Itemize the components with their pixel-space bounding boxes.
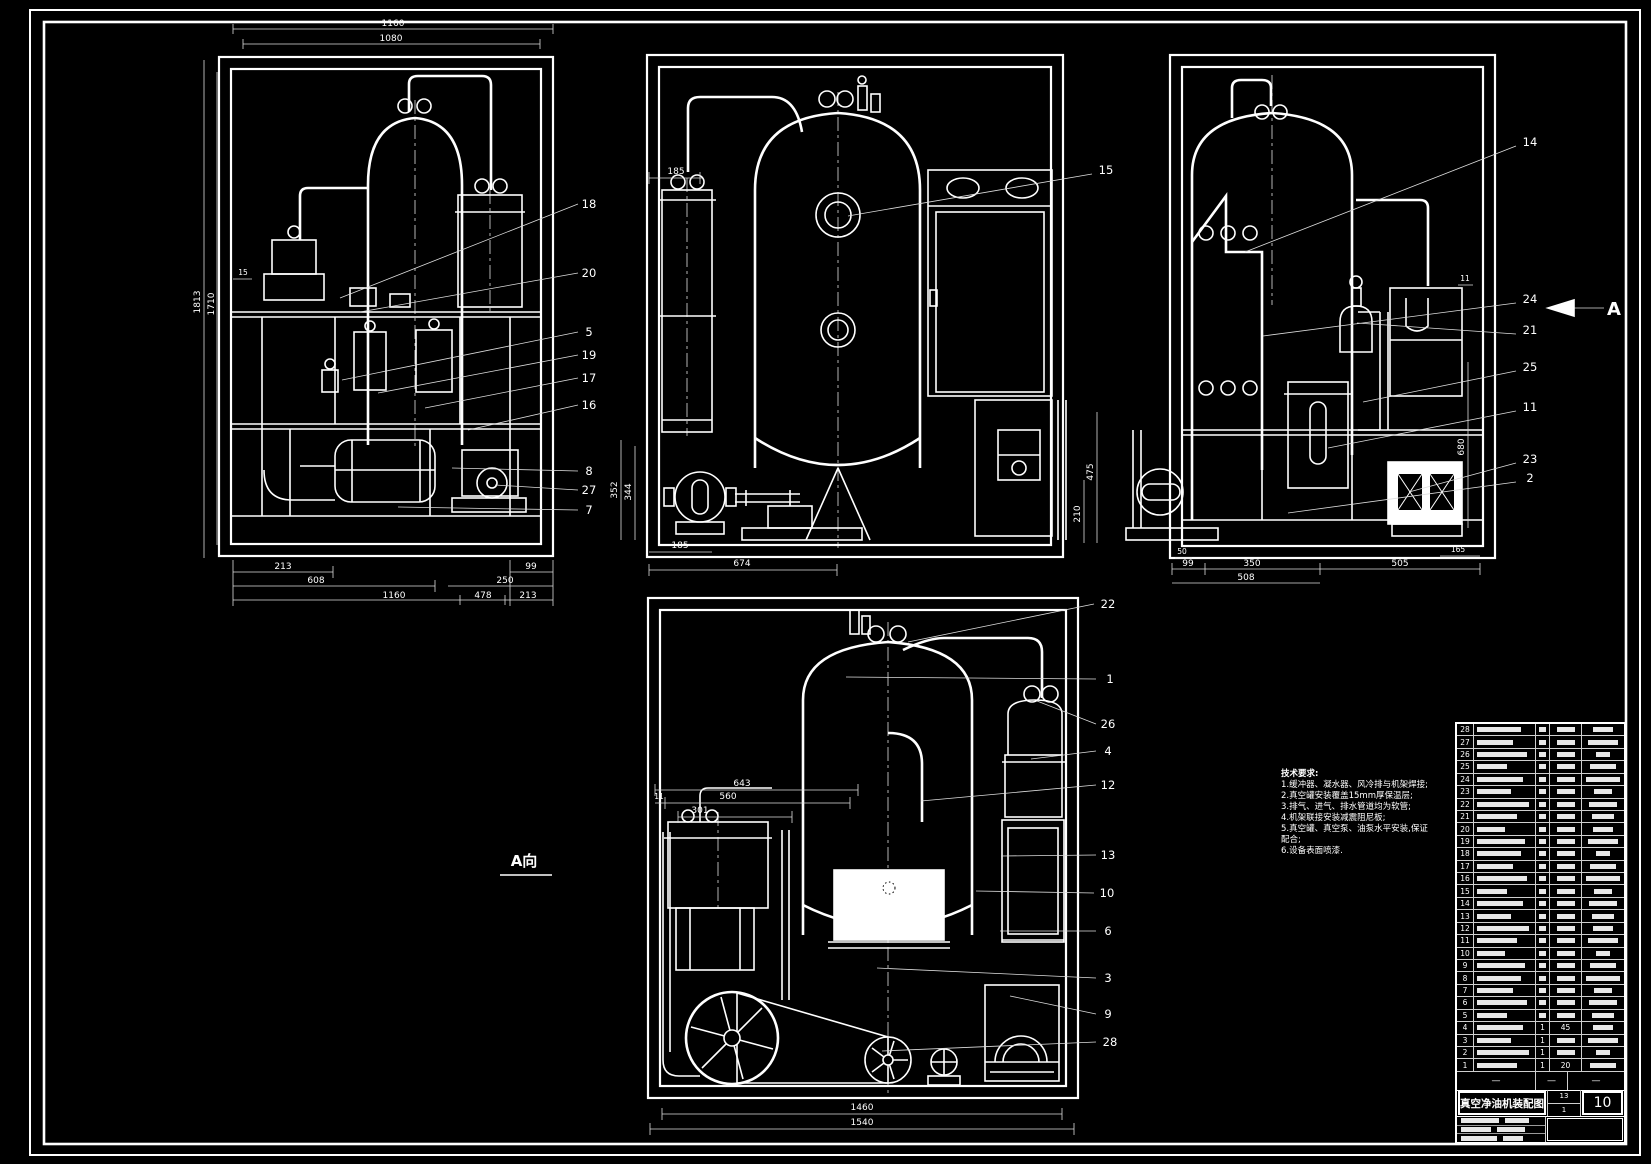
tech-requirements-heading: 技术要求: [1281, 769, 1439, 780]
dim-label: 185 [667, 167, 684, 177]
callout-label: 14 [1523, 135, 1538, 149]
separator-cell: — [1568, 1072, 1624, 1090]
parts-table-row: 14 [1457, 898, 1624, 910]
view-a-direction [648, 598, 1078, 1098]
callout-label: 28 [1103, 1035, 1118, 1049]
parts-table-row: 13 [1457, 910, 1624, 922]
callout-label: 13 [1101, 848, 1116, 862]
view-side-right [1126, 55, 1495, 558]
callout-label: 18 [582, 197, 597, 211]
dim-label: 213 [274, 562, 291, 572]
callout-label: 21 [1523, 323, 1538, 337]
title-block-empty-box [1547, 1118, 1623, 1141]
view-front-main [647, 55, 1066, 557]
parts-table-row: 9 [1457, 960, 1624, 972]
dim-label: 508 [1237, 573, 1254, 583]
drawing-sheet: 1160 1080 1813 1710 15 213 99 608 250 11… [0, 0, 1651, 1164]
callout-label: 11 [1523, 400, 1538, 414]
dim-label: 1710 [207, 292, 217, 315]
parts-table-row: 4145 [1457, 1022, 1624, 1034]
parts-table-row: 11 [1457, 935, 1624, 947]
signature-rows [1457, 1117, 1546, 1142]
parts-table-rows: 2827262524232221201918171615141312111098… [1457, 724, 1624, 1072]
parts-table-row: 26 [1457, 749, 1624, 761]
parts-table-row: 17 [1457, 861, 1624, 873]
parts-table-row: 6 [1457, 997, 1624, 1009]
callout-label: 3 [1104, 971, 1111, 985]
drawing-title: 真空净油机装配图 [1458, 1091, 1546, 1115]
separator-cell: — [1457, 1072, 1536, 1090]
dim-label: 213 [519, 591, 536, 601]
dim-label: 11 [654, 792, 664, 801]
a-view-label: A向 [500, 852, 552, 875]
dim-label: 560 [719, 792, 736, 802]
tech-requirement-line: 1.缓冲器、凝水器、风冷排与机架焊接; [1281, 780, 1439, 791]
parts-table-row: 20 [1457, 823, 1624, 835]
dim-label: 1160 [382, 19, 405, 29]
dim-label: 505 [1391, 559, 1408, 569]
dim-label: 99 [525, 562, 537, 572]
dim-label: 352 [610, 481, 620, 498]
callout-label: 5 [585, 325, 592, 339]
callout-label: 27 [582, 483, 597, 497]
callout-label: 4 [1104, 744, 1111, 758]
dim-label: 1813 [193, 291, 203, 314]
dim-label: 99 [1182, 559, 1194, 569]
tech-requirement-line: 配合; [1281, 835, 1439, 846]
parts-table-row: 25 [1457, 761, 1624, 773]
section-arrow-label: A [1607, 299, 1621, 320]
parts-table-row: 1120 [1457, 1059, 1624, 1071]
tech-requirement-line: 2.真空罐安装覆盖15mm厚保温层; [1281, 791, 1439, 802]
parts-table-row: 27 [1457, 736, 1624, 748]
parts-table-row: 22 [1457, 799, 1624, 811]
parts-table-row: 10 [1457, 948, 1624, 960]
parts-table-row: 28 [1457, 724, 1624, 736]
callout-label: 9 [1104, 1007, 1111, 1021]
title-block: 真空净油机装配图 13 1 10 [1457, 1090, 1624, 1116]
callout-label: 19 [582, 348, 597, 362]
callout-label: 2 [1526, 471, 1533, 485]
cad-drawing-canvas[interactable]: 1160 1080 1813 1710 15 213 99 608 250 11… [0, 0, 1651, 1164]
dim-label: 350 [1243, 559, 1260, 569]
parts-table-row: 18 [1457, 848, 1624, 860]
callout-label: 12 [1101, 778, 1116, 792]
callout-label: 17 [582, 371, 597, 385]
tech-requirement-line: 6.设备表面喷漆. [1281, 846, 1439, 857]
callout-label: 10 [1100, 886, 1115, 900]
callout-label: 25 [1523, 360, 1538, 374]
parts-table-row: 12 [1457, 923, 1624, 935]
dim-label: 478 [474, 591, 491, 601]
dim-label: 210 [1073, 505, 1083, 522]
parts-table-row: 7 [1457, 985, 1624, 997]
dim-label: 643 [733, 779, 750, 789]
dim-label: 608 [307, 576, 324, 586]
callout-label: 8 [585, 464, 592, 478]
callout-label: 22 [1101, 597, 1116, 611]
parts-table-row: 8 [1457, 972, 1624, 984]
dim-label: 250 [496, 576, 513, 586]
dim-label: 1460 [851, 1103, 874, 1113]
parts-table-row: 19 [1457, 836, 1624, 848]
parts-table-row: 16 [1457, 873, 1624, 885]
sheet-border [30, 10, 1640, 1155]
dim-label: 50 [1177, 547, 1187, 556]
callout-label: 1 [1106, 672, 1113, 686]
tech-requirement-line: 3.排气、进气、排水管道均为软管; [1281, 802, 1439, 813]
title-block-cell: 13 [1548, 1090, 1580, 1104]
parts-table-row: 23 [1457, 786, 1624, 798]
parts-list-table: 2827262524232221201918171615141312111098… [1455, 722, 1626, 1144]
section-arrow-A: A [1548, 299, 1621, 320]
tech-requirements: 技术要求: 1.缓冲器、凝水器、风冷排与机架焊接; 2.真空罐安装覆盖15mm厚… [1281, 769, 1439, 857]
dim-label: 15 [238, 268, 248, 277]
callout-label: 23 [1523, 452, 1538, 466]
callout-label: 15 [1099, 163, 1114, 177]
tech-requirement-line: 4.机架联接安装减震阻尼板; [1281, 813, 1439, 824]
dim-label: 475 [1086, 463, 1096, 480]
parts-table-separator: — — — [1457, 1072, 1624, 1091]
callout-label: 20 [582, 266, 597, 280]
dim-label: 1080 [380, 34, 403, 44]
callout-label: 26 [1101, 717, 1116, 731]
separator-cell: — [1536, 1072, 1568, 1090]
callout-label: 7 [585, 503, 592, 517]
title-block-footer [1457, 1116, 1624, 1142]
parts-table-row: 5 [1457, 1010, 1624, 1022]
dim-label: 11 [1460, 274, 1470, 283]
parts-table-row: 21 [1457, 811, 1624, 823]
svg-text:A向: A向 [511, 852, 538, 870]
dim-label: 344 [624, 483, 634, 500]
title-block-cell: 1 [1548, 1104, 1580, 1117]
callout-label: 24 [1523, 292, 1538, 306]
callout-label: 16 [582, 398, 597, 412]
parts-table-row: 24 [1457, 774, 1624, 786]
sheet-number: 10 [1582, 1091, 1623, 1115]
dim-label: 680 [1457, 438, 1467, 455]
dim-label: 1540 [851, 1118, 874, 1128]
parts-table-row: 31 [1457, 1035, 1624, 1047]
parts-table-row: 21 [1457, 1047, 1624, 1059]
dim-label: 1160 [383, 591, 406, 601]
tech-requirement-line: 5.真空罐、真空泵、油泵水平安装,保证 [1281, 824, 1439, 835]
view-front-main-dimensions: 185 352 344 185 674 475 210 15 [610, 163, 1113, 576]
callout-label: 6 [1104, 924, 1111, 938]
dim-label: 165 [1451, 545, 1466, 554]
view-front-left [219, 57, 553, 556]
title-block-mid-cells: 13 1 [1547, 1090, 1581, 1116]
view-a-direction-dimensions: 643 11 560 301 1460 1540 22 1 26 4 12 13… [650, 597, 1117, 1135]
dim-label: 185 [671, 541, 688, 551]
dim-label: 674 [733, 559, 750, 569]
parts-table-row: 15 [1457, 885, 1624, 897]
dim-label: 301 [691, 806, 708, 816]
